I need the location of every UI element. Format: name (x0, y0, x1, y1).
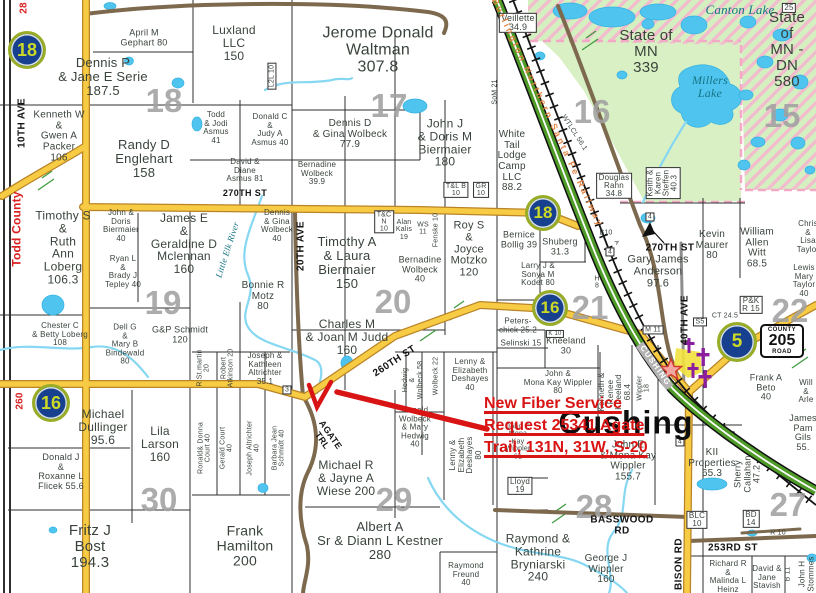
sign-road-text: ROAD (762, 349, 802, 355)
sign-number: 205 (762, 333, 802, 349)
town-name: Cushing (559, 405, 694, 442)
plat-map[interactable]: 181716151920212230292827 April M Gephart… (0, 0, 816, 593)
map-graphics (0, 0, 816, 593)
county-road-205-sign: COUNTY 205 ROAD (760, 324, 804, 358)
rivers (0, 78, 686, 593)
